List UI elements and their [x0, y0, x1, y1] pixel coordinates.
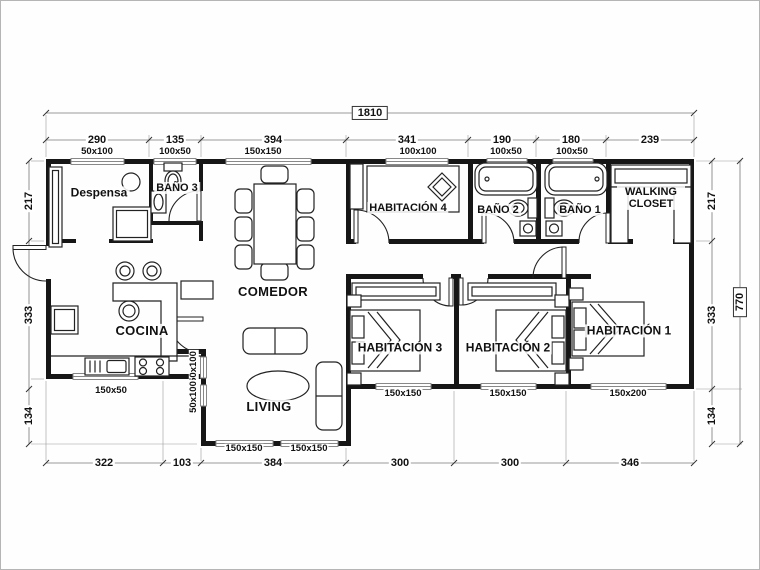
sink-icon	[151, 191, 166, 213]
room-label-walking-closet: WALKING CLOSET	[617, 186, 685, 210]
room-label-habitacion1: HABITACIÓN 1	[585, 324, 673, 337]
sofa-icon	[243, 328, 307, 354]
overall-height-dim: 770	[733, 287, 747, 317]
room-label-bano2: BAÑO 2	[475, 204, 521, 216]
closet-3-icon	[352, 283, 440, 300]
window-label-bottom-2: 150x150	[225, 444, 264, 454]
window-label-top-3: 150x150	[244, 147, 283, 157]
dim-right-3: 134	[706, 405, 718, 427]
pantry-shelf-icon	[49, 167, 62, 247]
dim-bottom-5: 300	[499, 457, 521, 469]
room-label-habitacion3: HABITACIÓN 3	[356, 341, 444, 354]
window-label-bottom-5: 150x150	[489, 389, 528, 399]
floor-plan: 1810 770 290 135 394 341 190 180 239 50x…	[0, 0, 760, 570]
overall-width-dim: 1810	[352, 106, 388, 120]
dim-bottom-2: 103	[171, 457, 193, 469]
dim-top-3: 394	[262, 134, 284, 146]
pass-through-counter-icon	[181, 281, 213, 299]
dim-top-6: 180	[560, 134, 582, 146]
window-label-top-4: 100x100	[399, 147, 438, 157]
window-label-bottom-4: 150x150	[384, 389, 423, 399]
room-label-comedor: COMEDOR	[236, 285, 310, 299]
window-label-side-2: 50x100	[189, 380, 199, 414]
window-label-bottom-6: 150x200	[609, 389, 648, 399]
room-label-cocina: COCINA	[113, 324, 170, 338]
dim-left-1: 217	[23, 190, 35, 212]
floor-plan-drawing	[1, 1, 760, 570]
dim-left-3: 134	[23, 405, 35, 427]
closet-2-icon	[468, 283, 556, 300]
room-label-habitacion2: HABITACIÓN 2	[464, 341, 552, 354]
rug-icon	[247, 371, 309, 401]
room-label-bano3: BAÑO 3	[154, 182, 200, 194]
dim-top-4: 341	[396, 134, 418, 146]
dim-right-2: 333	[706, 304, 718, 326]
sink-1-icon	[546, 221, 562, 236]
room-label-bano1: BAÑO 1	[557, 204, 603, 216]
dim-bottom-3: 384	[262, 457, 284, 469]
dim-bottom-4: 300	[389, 457, 411, 469]
sink-2-icon	[520, 221, 536, 236]
room-label-habitacion4: HABITACIÓN 4	[367, 202, 448, 214]
dim-top-7: 239	[639, 134, 661, 146]
window-label-bottom-1: 150x50	[94, 386, 128, 396]
window-label-side-1: 50x100	[189, 350, 199, 384]
dim-right-1: 217	[706, 190, 718, 212]
window-label-top-5: 100x50	[489, 147, 523, 157]
freezer-icon	[113, 207, 151, 241]
window-label-top-2: 100x50	[158, 147, 192, 157]
sofa-side-icon	[316, 362, 342, 430]
window-label-bottom-3: 150x150	[290, 444, 329, 454]
bathtub-2-icon	[475, 163, 537, 195]
dining-table-icon	[235, 166, 314, 280]
dim-bottom-6: 346	[619, 457, 641, 469]
dim-top-2: 135	[164, 134, 186, 146]
dim-top-5: 190	[491, 134, 513, 146]
window-label-top-1: 50x100	[80, 147, 114, 157]
bathtub-1-icon	[545, 163, 607, 195]
room-label-despensa: Despensa	[69, 186, 130, 199]
dim-left-2: 333	[23, 304, 35, 326]
dim-bottom-1: 322	[93, 457, 115, 469]
room-label-living: LIVING	[244, 400, 293, 414]
window-label-top-6: 100x50	[555, 147, 589, 157]
dim-top-1: 290	[86, 134, 108, 146]
fridge-icon	[51, 306, 78, 334]
closet-small-icon	[350, 164, 363, 209]
